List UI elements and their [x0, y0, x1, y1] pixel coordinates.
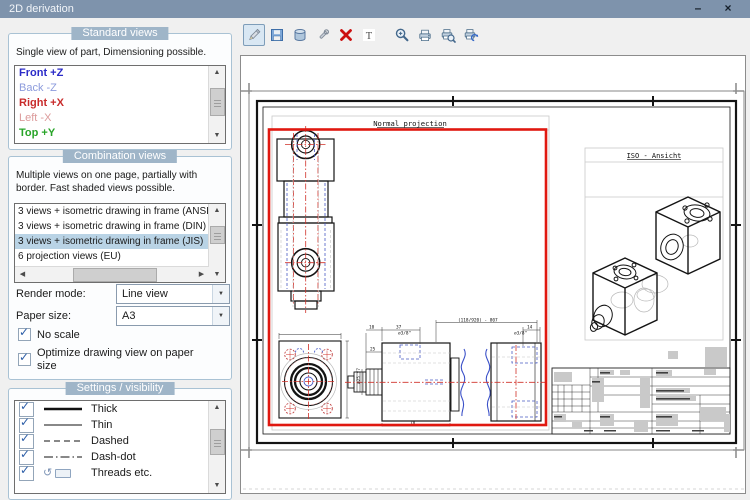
- drawing-preview-canvas[interactable]: Normal projection: [240, 55, 746, 494]
- database-button[interactable]: [289, 24, 311, 46]
- scrollbar-thumb[interactable]: [210, 88, 225, 116]
- combination-views-header: Combination views: [63, 150, 177, 163]
- scrollbar-vertical[interactable]: ▲ ▼: [208, 204, 225, 282]
- line-type-label: Dash-dot: [91, 451, 136, 463]
- print-preview-button[interactable]: [437, 24, 459, 46]
- line-type-row[interactable]: ✓ Thick: [15, 401, 209, 417]
- edit-button[interactable]: [243, 24, 265, 46]
- dim-label: ⌀3/8": [398, 331, 411, 337]
- threads-checkbox[interactable]: ✓: [19, 466, 34, 481]
- minimize-button[interactable]: –: [686, 0, 710, 17]
- title-bar: 2D derivation – ×: [0, 0, 750, 18]
- window-title: 2D derivation: [9, 3, 74, 15]
- dim-label: 37: [396, 325, 402, 331]
- normal-projection-label: Normal projection: [373, 119, 447, 128]
- svg-text:T: T: [366, 31, 373, 42]
- scroll-up-icon[interactable]: ▲: [209, 204, 225, 218]
- modify-button[interactable]: [312, 24, 334, 46]
- scrollbar-thumb[interactable]: [210, 429, 225, 455]
- print-setup-button[interactable]: [460, 24, 482, 46]
- rotate-arrow-icon: ↺: [43, 468, 52, 478]
- checkmark-icon: ✓: [20, 431, 30, 445]
- line-type-label: Thick: [91, 403, 117, 415]
- list-item-selected[interactable]: 3 views + isometric drawing in frame (JI…: [15, 234, 209, 249]
- printer-icon: [417, 27, 433, 43]
- paper-size-dropdown[interactable]: A3 ▼: [116, 306, 230, 326]
- wrench-icon: [315, 27, 331, 43]
- list-item[interactable]: 3 views + isometric drawing in frame (AN…: [15, 204, 209, 219]
- scroll-down-icon[interactable]: ▼: [209, 479, 225, 493]
- standard-views-description: Single view of part, Dimensioning possib…: [16, 47, 206, 60]
- dim-label: 14: [527, 325, 533, 331]
- list-item[interactable]: 6 projection views (EU): [15, 249, 209, 264]
- list-item[interactable]: Back -Z: [15, 81, 209, 96]
- combination-views-group: Combination views Multiple views on one …: [8, 156, 232, 380]
- dim-label: ⌀3/8": [514, 331, 527, 337]
- thread-symbol-icon: [55, 469, 71, 478]
- text-button[interactable]: T: [358, 24, 380, 46]
- scrollbar-vertical[interactable]: ▲ ▼: [208, 401, 225, 493]
- line-type-row[interactable]: ✓ Dash-dot: [15, 449, 209, 465]
- scroll-up-icon[interactable]: ▲: [209, 401, 225, 415]
- dim-label: 25: [370, 347, 376, 353]
- standard-views-listbox[interactable]: Front +Z Back -Z Right +X Left -X Top +Y…: [14, 65, 226, 144]
- list-item[interactable]: Top +Y: [15, 126, 209, 141]
- scrollbar-vertical[interactable]: ▲ ▼: [208, 66, 225, 143]
- scroll-down-icon[interactable]: ▼: [209, 268, 225, 282]
- standard-views-header: Standard views: [71, 27, 168, 40]
- render-mode-value: Line view: [122, 288, 168, 300]
- chevron-down-icon[interactable]: ▼: [212, 307, 229, 325]
- combination-views-listbox[interactable]: 3 views + isometric drawing in frame (AN…: [14, 203, 226, 283]
- settings-visibility-listbox[interactable]: ✓ Thick ✓ Thin ✓ Dashed ✓: [14, 400, 226, 494]
- scrollbar-thumb[interactable]: [210, 226, 225, 244]
- combination-views-description: Multiple views on one page, partially wi…: [16, 170, 222, 195]
- checkmark-icon: ✓: [19, 325, 29, 339]
- render-mode-label: Render mode:: [16, 288, 86, 300]
- standard-views-group: Standard views Single view of part, Dime…: [8, 33, 232, 150]
- thin-line-swatch: [43, 421, 83, 429]
- list-item[interactable]: Front +Z: [15, 66, 209, 81]
- scroll-left-icon[interactable]: ◀: [15, 267, 30, 282]
- dim-label: 10: [369, 325, 375, 331]
- optimize-checkbox[interactable]: ✓: [18, 353, 31, 366]
- settings-visibility-group: Settings / visibility ✓ Thick ✓ Thin ✓ D…: [8, 388, 232, 500]
- checkmark-icon: ✓: [20, 415, 30, 429]
- delete-x-icon: [338, 27, 354, 43]
- line-type-row[interactable]: ✓ ↺ Threads etc.: [15, 465, 209, 481]
- threads-icons-swatch: ↺: [43, 468, 83, 478]
- line-type-label: Dashed: [91, 435, 129, 447]
- magnifier-icon: [394, 27, 410, 43]
- settings-visibility-header: Settings / visibility: [66, 382, 175, 395]
- scroll-down-icon[interactable]: ▼: [209, 129, 225, 143]
- dashed-line-swatch: [43, 437, 83, 445]
- print-button[interactable]: [414, 24, 436, 46]
- printer-setup-icon: [463, 27, 479, 43]
- no-scale-checkbox[interactable]: ✓: [18, 328, 31, 341]
- paper-size-label: Paper size:: [16, 310, 71, 322]
- database-icon: [292, 27, 308, 43]
- iso-view-label: ISO - Ansicht: [627, 152, 682, 160]
- checkmark-icon: ✓: [20, 400, 30, 413]
- zoom-button[interactable]: [391, 24, 413, 46]
- text-icon: T: [361, 27, 377, 43]
- list-item[interactable]: 3 views + isometric drawing in frame (DI…: [15, 219, 209, 234]
- close-button[interactable]: ×: [716, 0, 740, 17]
- list-item[interactable]: Right +X: [15, 96, 209, 111]
- scroll-up-icon[interactable]: ▲: [209, 66, 225, 80]
- delete-button[interactable]: [335, 24, 357, 46]
- drawing-sheet: Normal projection: [241, 56, 745, 493]
- scrollbar-horizontal[interactable]: ◀ ▶: [15, 266, 209, 282]
- scrollbar-thumb[interactable]: [73, 268, 157, 282]
- checkmark-icon: ✓: [19, 350, 29, 364]
- dim-label: ⌀25 f7: [356, 368, 362, 384]
- toolbar: T: [243, 24, 482, 46]
- checkmark-icon: ✓: [20, 447, 30, 461]
- line-type-label: Thin: [91, 419, 112, 431]
- printer-preview-icon: [440, 27, 456, 43]
- line-type-label: Threads etc.: [91, 467, 152, 479]
- line-type-row[interactable]: ✓ Thin: [15, 417, 209, 433]
- optimize-label: Optimize drawing view on paper size: [37, 347, 197, 373]
- render-mode-dropdown[interactable]: Line view ▼: [116, 284, 230, 304]
- list-item[interactable]: Left -X: [15, 111, 209, 126]
- 2d-derivation-window: { "window": { "title": "2D derivation" }…: [0, 0, 750, 494]
- no-scale-label: No scale: [37, 329, 80, 342]
- pencil-icon: [246, 27, 262, 43]
- scroll-right-icon[interactable]: ▶: [194, 267, 209, 282]
- checkmark-icon: ✓: [20, 463, 30, 477]
- paper-size-value: A3: [122, 310, 135, 322]
- save-icon: [269, 27, 285, 43]
- dashdot-line-swatch: [43, 453, 83, 461]
- thick-line-swatch: [43, 405, 83, 413]
- save-button[interactable]: [266, 24, 288, 46]
- line-type-row[interactable]: ✓ Dashed: [15, 433, 209, 449]
- chevron-down-icon[interactable]: ▼: [212, 285, 229, 303]
- dim-label: (118/920) - 807: [458, 317, 498, 323]
